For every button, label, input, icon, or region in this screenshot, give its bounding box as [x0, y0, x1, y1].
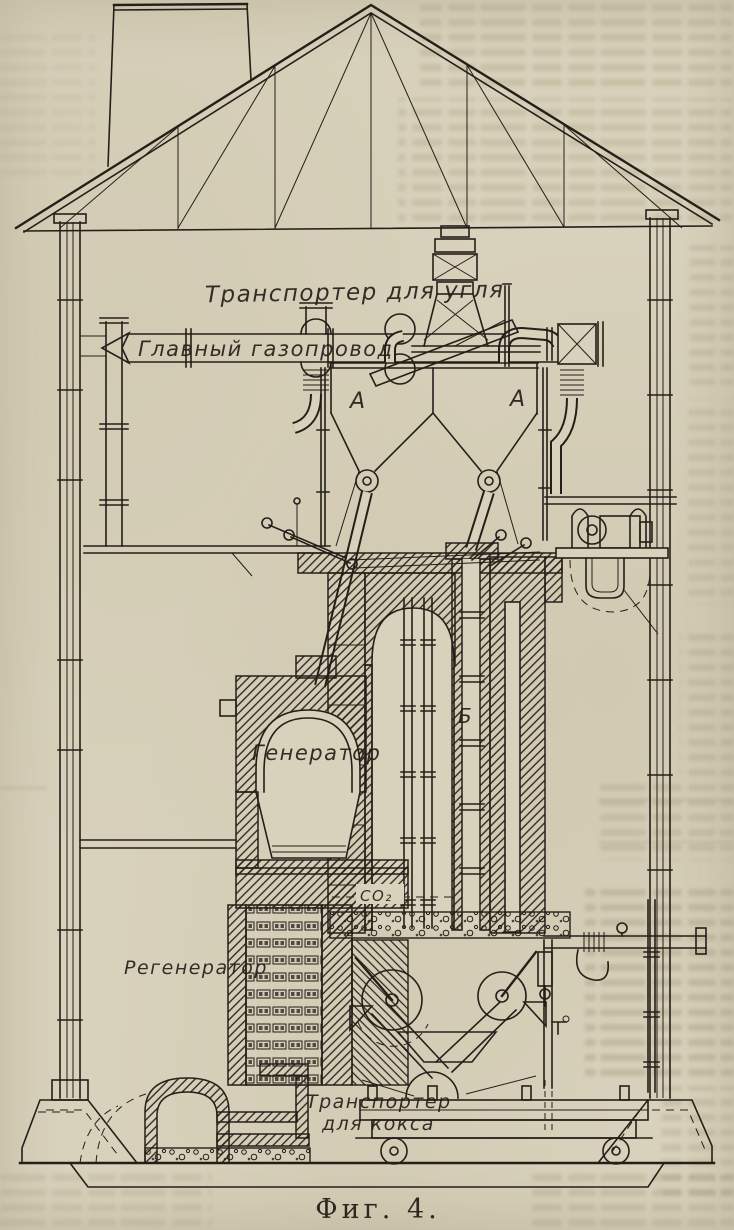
- showthrough-text-block: [680, 628, 734, 778]
- showthrough-text-block: [398, 98, 732, 228]
- coke-oven-section-diagram: Транспортер для угля Главный газопровод …: [0, 0, 734, 1230]
- label-coke-conveyor-line1: Транспортер: [306, 1091, 452, 1113]
- label-regenerator: Регенератор: [124, 957, 268, 979]
- left-riser-pipe: [80, 318, 128, 546]
- scanned-book-page: Транспортер для угля Главный газопровод …: [0, 0, 734, 1230]
- label-hopper-a-right: А: [508, 387, 527, 412]
- showthrough-text-block: [598, 784, 734, 860]
- showthrough-text-block: [0, 30, 95, 180]
- label-generator: Генератор: [252, 741, 381, 765]
- label-coal-conveyor: Транспортер для угля: [205, 277, 505, 308]
- left-lattice-column: [58, 222, 82, 1098]
- showthrough-text-block: [585, 884, 734, 1080]
- label-shaft-b: Б: [458, 704, 473, 728]
- figure-caption: Фиг. 4.: [315, 1194, 440, 1225]
- label-hopper-a-left: А: [348, 389, 367, 414]
- label-co2: CO₂: [360, 887, 393, 905]
- label-coke-conveyor-line2: для кокса: [321, 1113, 435, 1135]
- showthrough-text-block: [0, 1172, 212, 1226]
- showthrough-text-block: [532, 1168, 734, 1226]
- label-main-gas-pipeline: Главный газопровод: [138, 337, 394, 361]
- showthrough-text-block: [690, 245, 734, 385]
- showthrough-text-block: [686, 400, 734, 605]
